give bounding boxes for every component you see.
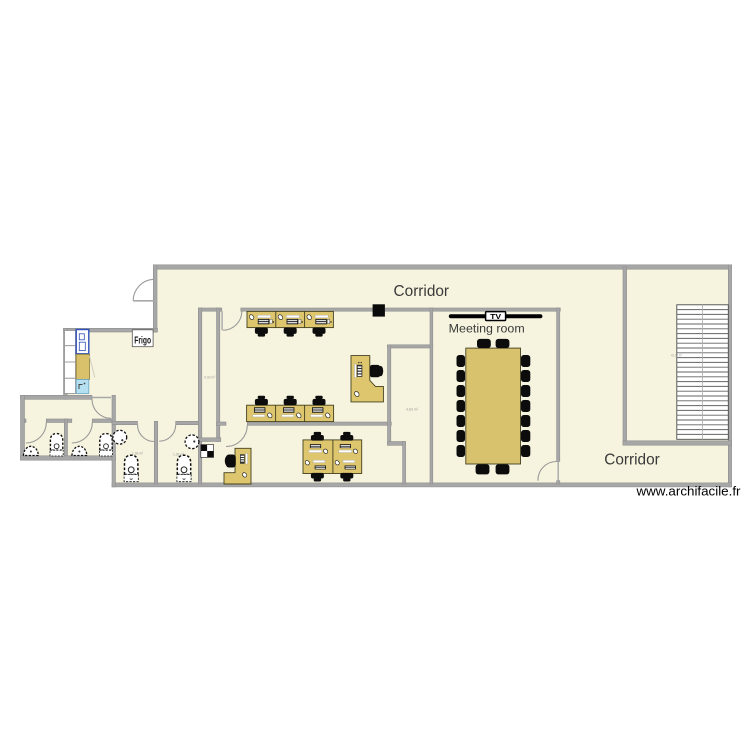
svg-text:4,63 m²: 4,63 m²: [406, 407, 419, 411]
svg-text:www.archifacile.fr: www.archifacile.fr: [635, 484, 741, 499]
svg-text:Corridor: Corridor: [604, 452, 660, 469]
svg-text:TV: TV: [490, 314, 501, 321]
svg-text:Corridor: Corridor: [394, 283, 450, 300]
svg-text:1,93 m²: 1,93 m²: [132, 451, 144, 455]
svg-text:41,77 m²: 41,77 m²: [671, 354, 683, 358]
svg-text:1,93 m²: 1,93 m²: [173, 452, 185, 456]
svg-text:Meeting room: Meeting room: [449, 322, 525, 336]
svg-text:Frigo: Frigo: [134, 334, 151, 346]
svg-text:0,92 m²: 0,92 m²: [204, 376, 216, 380]
